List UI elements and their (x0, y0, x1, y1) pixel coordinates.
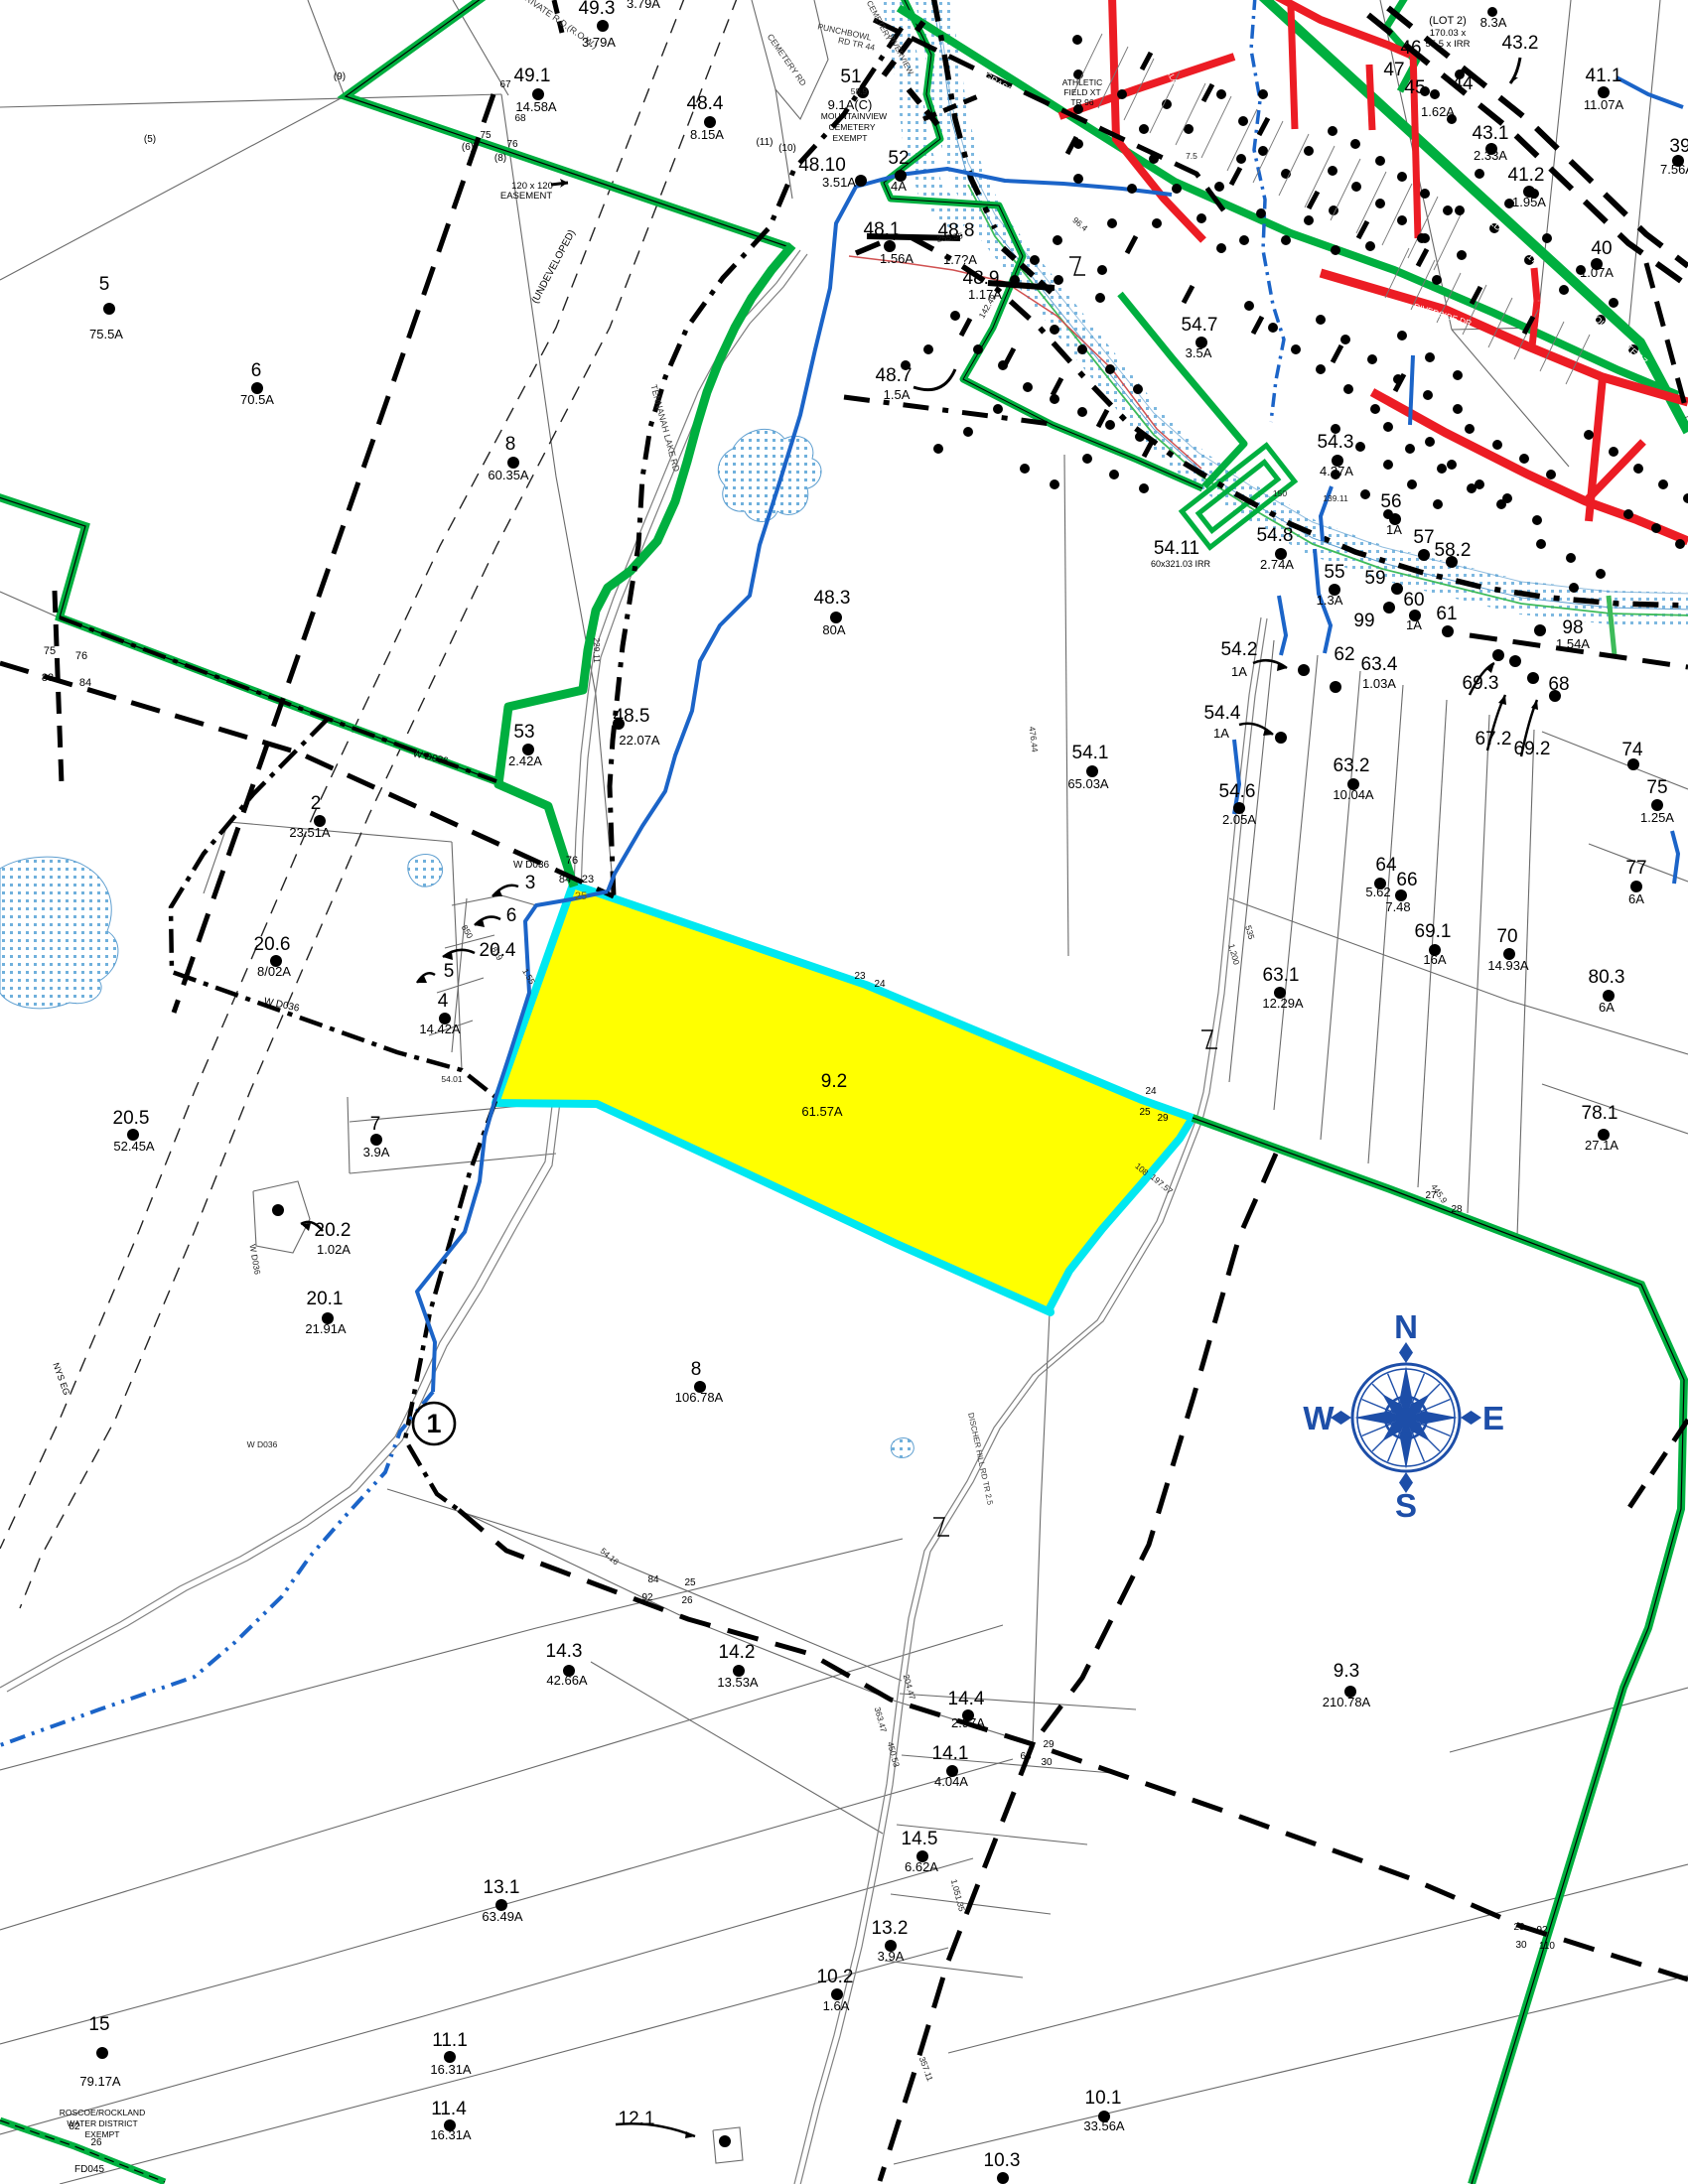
svg-text:47: 47 (1383, 60, 1404, 80)
svg-text:2: 2 (311, 793, 322, 814)
svg-text:59: 59 (1364, 568, 1385, 589)
svg-text:1.5A: 1.5A (884, 387, 911, 402)
svg-text:6A: 6A (1628, 891, 1644, 906)
svg-text:63.4: 63.4 (1361, 654, 1398, 675)
svg-text:51: 51 (840, 67, 861, 87)
svg-text:7.56A: 7.56A (1660, 162, 1688, 177)
svg-text:8.15A: 8.15A (690, 127, 724, 142)
svg-text:1.25A: 1.25A (1640, 810, 1674, 825)
svg-text:48.7: 48.7 (876, 365, 913, 386)
svg-text:56: 56 (1380, 491, 1401, 512)
svg-text:40: 40 (1591, 238, 1612, 259)
svg-text:1.56A: 1.56A (880, 251, 914, 266)
svg-text:1.3A: 1.3A (1317, 593, 1343, 608)
svg-text:28: 28 (1451, 1204, 1463, 1215)
svg-text:25: 25 (575, 890, 587, 902)
svg-text:15: 15 (88, 2014, 109, 2035)
svg-text:6A: 6A (1599, 1000, 1615, 1015)
svg-text:20.5: 20.5 (113, 1108, 150, 1129)
svg-text:EXEMPT: EXEMPT (833, 133, 868, 143)
svg-text:54.11: 54.11 (1154, 538, 1199, 559)
svg-text:7.48: 7.48 (1385, 899, 1410, 914)
svg-text:80A: 80A (822, 622, 845, 637)
svg-text:10.1: 10.1 (1085, 2088, 1122, 2109)
svg-text:61.57A: 61.57A (801, 1104, 843, 1119)
svg-text:68: 68 (514, 113, 526, 124)
svg-text:58.9: 58.9 (851, 86, 868, 96)
svg-text:1.03A: 1.03A (1362, 676, 1396, 691)
svg-text:14.1: 14.1 (932, 1743, 969, 1764)
svg-text:69.1: 69.1 (1415, 921, 1452, 942)
svg-text:W D036: W D036 (513, 860, 550, 871)
svg-text:23: 23 (582, 874, 594, 886)
svg-text:84: 84 (79, 677, 91, 689)
svg-text:14.2: 14.2 (719, 1642, 756, 1663)
svg-text:60x321.03 IRR: 60x321.03 IRR (1151, 559, 1211, 569)
svg-text:29: 29 (1513, 1922, 1525, 1933)
svg-text:75: 75 (44, 645, 56, 657)
svg-text:30: 30 (1041, 1757, 1053, 1768)
svg-text:23: 23 (854, 971, 866, 982)
svg-text:70: 70 (1496, 926, 1517, 947)
svg-text:54.8: 54.8 (1257, 525, 1294, 546)
svg-text:23.51A: 23.51A (289, 825, 331, 840)
svg-text:43.2: 43.2 (1502, 33, 1539, 54)
svg-text:24: 24 (874, 979, 886, 990)
svg-text:63.49A: 63.49A (482, 1909, 523, 1924)
svg-text:14.4: 14.4 (948, 1689, 985, 1709)
svg-text:ROSCOE/ROCKLAND: ROSCOE/ROCKLAND (60, 2108, 145, 2117)
svg-text:54.01: 54.01 (441, 1074, 463, 1084)
svg-text:1.62A: 1.62A (1421, 104, 1455, 119)
svg-text:W: W (1303, 1400, 1335, 1436)
svg-text:1A: 1A (1231, 664, 1247, 679)
svg-text:2.33A: 2.33A (1474, 148, 1507, 163)
svg-text:W D036: W D036 (247, 1439, 278, 1449)
svg-text:(5): (5) (144, 134, 156, 145)
svg-text:N: N (1394, 1308, 1418, 1345)
svg-text:229.11: 229.11 (592, 637, 602, 663)
svg-text:48.3: 48.3 (814, 588, 851, 609)
svg-text:10.3: 10.3 (984, 2150, 1021, 2171)
svg-text:(11): (11) (756, 137, 773, 148)
svg-text:4: 4 (438, 991, 449, 1012)
svg-text:WATER DISTRICT: WATER DISTRICT (67, 2118, 137, 2128)
svg-text:84: 84 (559, 874, 571, 886)
svg-text:25: 25 (1139, 1107, 1151, 1118)
svg-text:60: 60 (1403, 590, 1424, 611)
svg-text:ATHLETIC: ATHLETIC (1062, 77, 1102, 87)
svg-text:12.1: 12.1 (619, 2109, 655, 2129)
svg-text:EXEMPT: EXEMPT (85, 2129, 120, 2139)
svg-text:27.1A: 27.1A (1585, 1138, 1618, 1153)
svg-text:7.5: 7.5 (1186, 151, 1197, 161)
svg-text:20.6: 20.6 (254, 934, 291, 955)
svg-text:69.2: 69.2 (1514, 739, 1551, 759)
svg-text:2.05A: 2.05A (1222, 812, 1256, 827)
svg-text:78.1: 78.1 (1582, 1103, 1618, 1124)
svg-text:5.62: 5.62 (1365, 885, 1390, 899)
svg-text:76: 76 (506, 139, 518, 150)
svg-text:(LOT 2): (LOT 2) (1429, 15, 1467, 27)
svg-text:54.1: 54.1 (1072, 743, 1109, 763)
svg-text:16.31A: 16.31A (430, 2062, 472, 2077)
svg-text:14.5: 14.5 (902, 1829, 938, 1849)
svg-text:61: 61 (1436, 604, 1457, 624)
svg-text:1.02A: 1.02A (317, 1242, 351, 1257)
svg-text:44: 44 (1452, 73, 1474, 94)
svg-text:48.9: 48.9 (963, 268, 1000, 289)
svg-text:3: 3 (525, 873, 536, 893)
svg-text:6: 6 (251, 360, 262, 381)
svg-text:48.1: 48.1 (864, 219, 901, 240)
svg-text:FD045: FD045 (74, 2164, 104, 2175)
svg-text:67: 67 (499, 79, 511, 90)
svg-text:54.6: 54.6 (1219, 781, 1256, 802)
svg-text:10.2: 10.2 (817, 1967, 854, 1987)
svg-text:24: 24 (1145, 1086, 1157, 1097)
svg-text:14.58A: 14.58A (515, 99, 557, 114)
svg-text:1A: 1A (1213, 726, 1229, 741)
svg-text:41.2: 41.2 (1508, 165, 1545, 186)
svg-text:20.2: 20.2 (315, 1220, 352, 1241)
svg-text:106.78A: 106.78A (675, 1390, 724, 1405)
svg-text:2.97A: 2.97A (951, 1715, 985, 1730)
svg-text:30: 30 (1515, 1940, 1527, 1951)
svg-text:170.03 x: 170.03 x (1430, 28, 1467, 39)
svg-text:3.79A: 3.79A (627, 0, 660, 11)
svg-text:8: 8 (691, 1359, 702, 1380)
svg-text:55: 55 (1324, 562, 1344, 583)
svg-text:13.1: 13.1 (484, 1877, 520, 1898)
svg-text:8.3A: 8.3A (1480, 15, 1507, 30)
svg-text:13.2: 13.2 (872, 1918, 909, 1939)
svg-text:8/02A: 8/02A (257, 964, 291, 979)
svg-text:52.45A: 52.45A (113, 1139, 155, 1154)
svg-text:4.37A: 4.37A (1320, 464, 1353, 478)
svg-text:75: 75 (1646, 777, 1667, 798)
svg-text:48.10: 48.10 (798, 155, 846, 176)
svg-text:46: 46 (1400, 38, 1421, 59)
svg-text:54.3: 54.3 (1318, 432, 1354, 453)
svg-text:9.1A(C): 9.1A(C) (828, 97, 873, 112)
svg-text:2.74A: 2.74A (1260, 557, 1294, 572)
svg-text:6.62A: 6.62A (905, 1859, 938, 1874)
svg-text:92: 92 (641, 1592, 653, 1603)
svg-text:16A: 16A (1423, 952, 1446, 967)
svg-text:14.3: 14.3 (546, 1641, 583, 1662)
svg-text:TR 96: TR 96 (1070, 97, 1093, 107)
svg-text:57: 57 (1413, 527, 1434, 548)
svg-text:7: 7 (370, 1114, 381, 1135)
svg-text:54.2: 54.2 (1221, 639, 1258, 660)
svg-text:80.3: 80.3 (1589, 967, 1625, 988)
svg-text:14.42A: 14.42A (419, 1022, 461, 1036)
svg-text:62: 62 (1334, 644, 1354, 665)
svg-text:43.1: 43.1 (1473, 123, 1509, 144)
svg-text:75: 75 (480, 130, 492, 141)
svg-text:1: 1 (426, 1409, 441, 1438)
svg-text:54.4: 54.4 (1204, 703, 1241, 724)
svg-text:E: E (1482, 1400, 1504, 1436)
svg-text:49.1: 49.1 (514, 66, 551, 86)
svg-text:MOUNTAINVIEW: MOUNTAINVIEW (821, 111, 887, 121)
svg-text:12.29A: 12.29A (1262, 996, 1304, 1011)
svg-text:1A: 1A (1386, 522, 1402, 537)
svg-text:83: 83 (42, 672, 54, 684)
svg-text:53: 53 (513, 722, 534, 743)
svg-text:75.5A: 75.5A (89, 327, 123, 341)
svg-text:3.5A: 3.5A (1186, 345, 1212, 360)
svg-text:FIELD XT: FIELD XT (1063, 87, 1100, 97)
svg-text:64: 64 (1375, 855, 1397, 876)
svg-text:77: 77 (1625, 858, 1646, 879)
svg-text:13.53A: 13.53A (717, 1675, 759, 1690)
svg-text:11.07A: 11.07A (1584, 97, 1624, 112)
svg-text:3.9A: 3.9A (878, 1949, 905, 1964)
svg-text:63.1: 63.1 (1263, 965, 1300, 986)
svg-text:79.17A: 79.17A (79, 2074, 121, 2089)
svg-text:66: 66 (1020, 1751, 1032, 1762)
svg-text:3.51A: 3.51A (822, 175, 856, 190)
svg-text:66: 66 (1396, 870, 1417, 890)
svg-text:99: 99 (1353, 611, 1374, 631)
svg-text:5: 5 (99, 274, 110, 295)
svg-text:76: 76 (566, 855, 578, 867)
svg-text:54.7: 54.7 (1182, 315, 1218, 336)
svg-text:41.1: 41.1 (1586, 66, 1622, 86)
svg-text:25: 25 (684, 1577, 696, 1588)
svg-text:60.35A: 60.35A (488, 468, 529, 482)
svg-text:29: 29 (1043, 1739, 1055, 1750)
svg-text:33.56A: 33.56A (1083, 2118, 1125, 2133)
svg-text:92: 92 (1536, 1925, 1548, 1936)
svg-text:5: 5 (444, 961, 455, 982)
svg-text:1.95A: 1.95A (1512, 195, 1546, 209)
svg-text:1.54A: 1.54A (1556, 636, 1590, 651)
svg-text:9.3: 9.3 (1334, 1661, 1359, 1682)
svg-text:49.3: 49.3 (579, 0, 616, 19)
svg-text:EASEMENT: EASEMENT (500, 191, 552, 202)
svg-text:84: 84 (647, 1574, 659, 1585)
svg-text:1A: 1A (1406, 617, 1422, 632)
svg-text:11.1: 11.1 (432, 2030, 468, 2051)
svg-text:70.5A: 70.5A (240, 392, 274, 407)
svg-text:8: 8 (505, 434, 516, 455)
svg-text:4A: 4A (891, 179, 907, 194)
svg-text:210.78A: 210.78A (1323, 1695, 1371, 1709)
svg-text:4.04A: 4.04A (934, 1774, 968, 1789)
svg-text:22.07A: 22.07A (619, 733, 660, 748)
svg-text:26: 26 (681, 1595, 693, 1606)
svg-text:150: 150 (1273, 488, 1287, 498)
svg-text:1.6A: 1.6A (823, 1998, 850, 2013)
svg-text:76: 76 (75, 650, 87, 662)
svg-text:52: 52 (888, 148, 909, 169)
svg-text:16.31A: 16.31A (430, 2127, 472, 2142)
svg-text:65.03A: 65.03A (1067, 776, 1109, 791)
svg-text:45: 45 (1404, 77, 1425, 98)
svg-text:74: 74 (1621, 740, 1643, 760)
svg-text:48.4: 48.4 (687, 93, 724, 114)
svg-text:1.7?A: 1.7?A (943, 252, 977, 267)
svg-text:1.07A: 1.07A (1580, 265, 1614, 280)
svg-text:3.9A: 3.9A (363, 1145, 390, 1160)
svg-text:(10): (10) (778, 143, 796, 154)
svg-text:(8): (8) (494, 153, 506, 164)
svg-text:29: 29 (1157, 1113, 1169, 1124)
svg-text:10.04A: 10.04A (1333, 787, 1374, 802)
svg-text:6: 6 (506, 905, 517, 926)
svg-text:139.11: 139.11 (1323, 493, 1348, 503)
svg-text:11.4: 11.4 (431, 2099, 467, 2119)
svg-text:42.66A: 42.66A (546, 1673, 588, 1688)
svg-text:CEMETERY: CEMETERY (828, 122, 875, 132)
svg-text:14.93A: 14.93A (1487, 958, 1529, 973)
svg-text:63.2: 63.2 (1334, 755, 1370, 776)
svg-text:55,5 x IRR: 55,5 x IRR (1426, 39, 1471, 50)
svg-text:98: 98 (1562, 617, 1583, 638)
svg-text:S: S (1395, 1487, 1417, 1524)
svg-text:20.1: 20.1 (307, 1289, 344, 1309)
svg-text:(6): (6) (462, 142, 474, 153)
svg-text:21.91A: 21.91A (305, 1321, 347, 1336)
svg-text:110: 110 (1539, 1941, 1555, 1952)
svg-text:(9): (9) (334, 71, 346, 82)
svg-text:39: 39 (1669, 136, 1688, 157)
svg-text:2.42A: 2.42A (508, 753, 542, 768)
svg-text:9.2: 9.2 (821, 1071, 847, 1092)
